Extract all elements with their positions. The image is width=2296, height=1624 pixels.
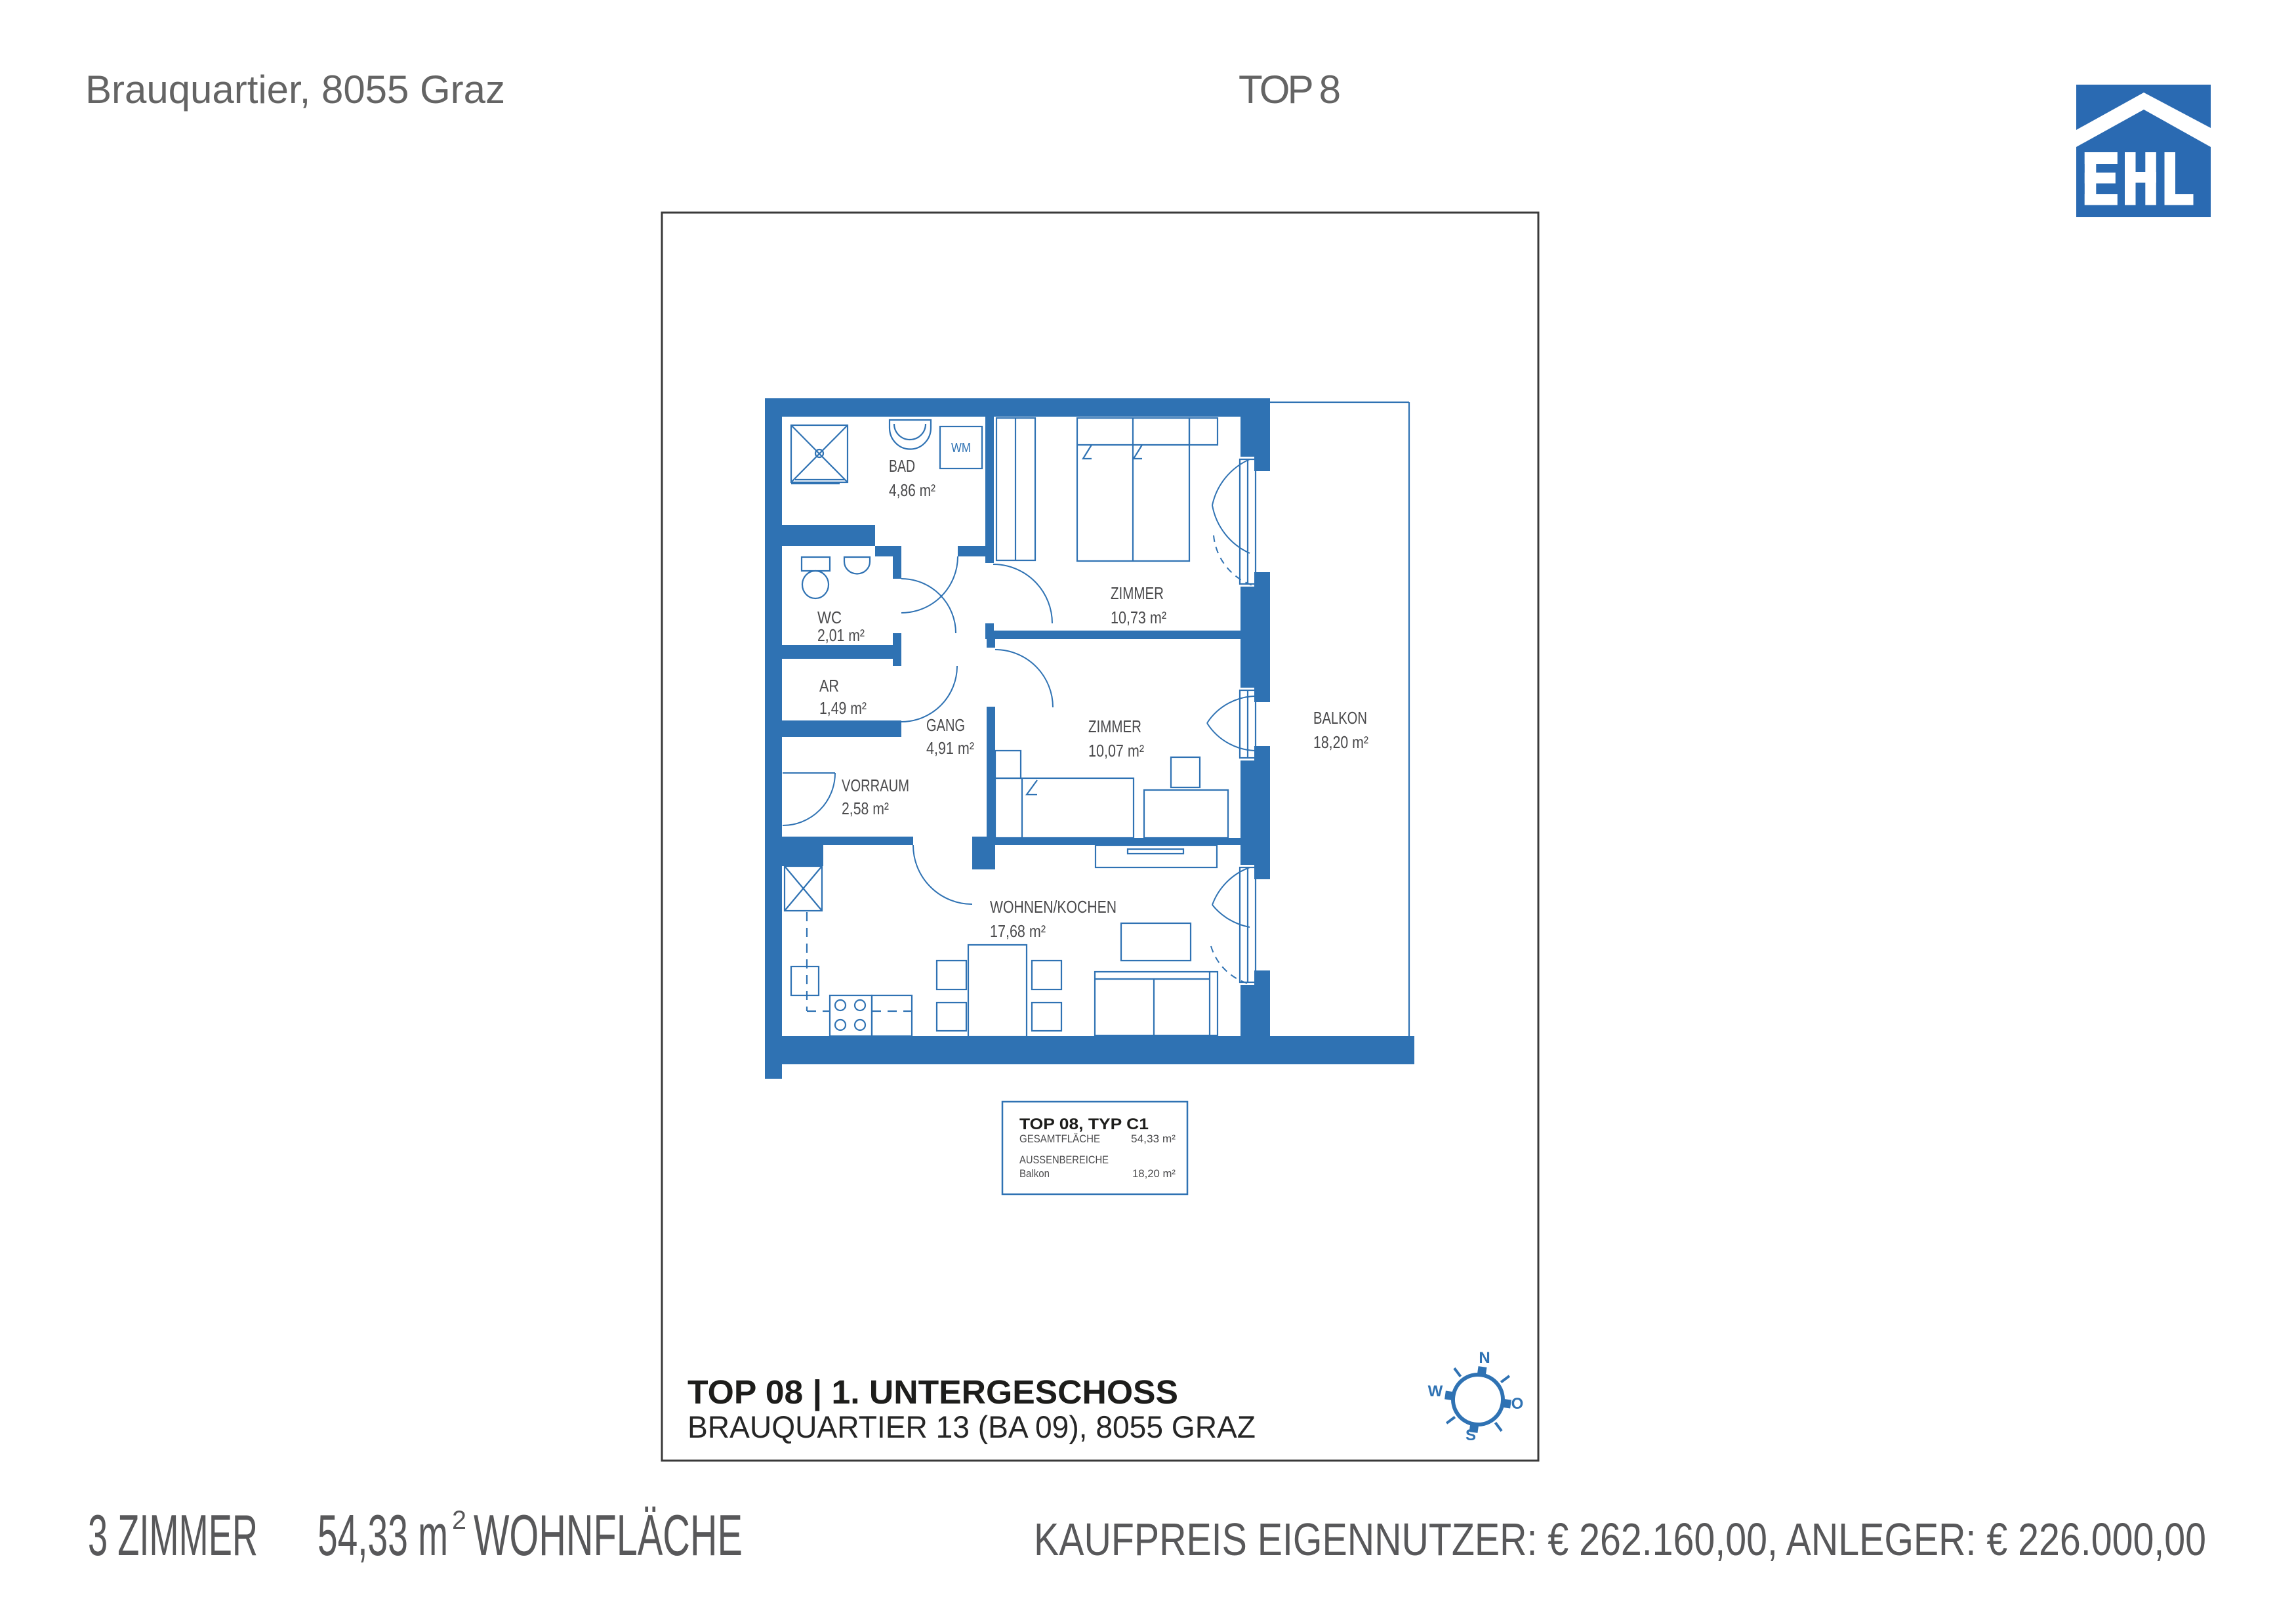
svg-text:1,49 m²: 1,49 m² xyxy=(819,698,867,718)
svg-text:WOHNFLÄCHE: WOHNFLÄCHE xyxy=(474,1503,743,1568)
svg-text:N: N xyxy=(1479,1349,1490,1367)
svg-text:54,33 m²: 54,33 m² xyxy=(1131,1133,1176,1145)
svg-text:WC: WC xyxy=(817,608,842,627)
svg-text:TOP 8: TOP 8 xyxy=(1239,68,1341,112)
svg-text:TOP 08, TYP C1: TOP 08, TYP C1 xyxy=(1019,1115,1149,1133)
svg-text:4,91 m²: 4,91 m² xyxy=(926,738,974,758)
svg-text:3 ZIMMER: 3 ZIMMER xyxy=(88,1503,258,1568)
svg-text:10,07 m²: 10,07 m² xyxy=(1088,741,1144,760)
svg-text:54,33 m: 54,33 m xyxy=(318,1503,448,1568)
svg-text:KAUFPREIS EIGENNUTZER: € 262.1: KAUFPREIS EIGENNUTZER: € 262.160,00, ANL… xyxy=(1034,1514,2206,1565)
svg-text:10,73 m²: 10,73 m² xyxy=(1111,608,1166,627)
svg-text:AUSSENBEREICHE: AUSSENBEREICHE xyxy=(1019,1154,1109,1166)
svg-text:S: S xyxy=(1466,1426,1476,1444)
svg-text:BAD: BAD xyxy=(889,456,915,476)
svg-text:W: W xyxy=(1428,1383,1443,1400)
svg-text:ZIMMER: ZIMMER xyxy=(1111,583,1164,603)
svg-text:TOP 08 | 1. UNTERGESCHOSS: TOP 08 | 1. UNTERGESCHOSS xyxy=(687,1373,1178,1411)
svg-text:Brauquartier, 8055 Graz: Brauquartier, 8055 Graz xyxy=(85,68,505,112)
svg-text:BALKON: BALKON xyxy=(1313,708,1367,728)
svg-text:GESAMTFLÄCHE: GESAMTFLÄCHE xyxy=(1019,1133,1100,1145)
svg-text:2,58 m²: 2,58 m² xyxy=(842,799,889,818)
svg-text:2,01 m²: 2,01 m² xyxy=(817,625,865,645)
svg-text:BRAUQUARTIER 13 (BA 09), 8055: BRAUQUARTIER 13 (BA 09), 8055 GRAZ xyxy=(687,1409,1256,1444)
svg-text:18,20 m²: 18,20 m² xyxy=(1313,732,1368,752)
svg-text:ZIMMER: ZIMMER xyxy=(1088,717,1141,736)
svg-text:Balkon: Balkon xyxy=(1019,1167,1050,1180)
svg-text:4,86 m²: 4,86 m² xyxy=(889,480,935,500)
svg-text:GANG: GANG xyxy=(926,715,965,735)
svg-text:2: 2 xyxy=(452,1506,466,1535)
svg-text:17,68 m²: 17,68 m² xyxy=(990,921,1046,941)
svg-text:AR: AR xyxy=(819,676,839,696)
svg-text:O: O xyxy=(1511,1395,1524,1413)
svg-text:18,20 m²: 18,20 m² xyxy=(1132,1167,1176,1180)
svg-text:WOHNEN/KOCHEN: WOHNEN/KOCHEN xyxy=(990,897,1117,917)
svg-text:VORRAUM: VORRAUM xyxy=(842,776,909,795)
svg-text:WM: WM xyxy=(951,441,971,455)
